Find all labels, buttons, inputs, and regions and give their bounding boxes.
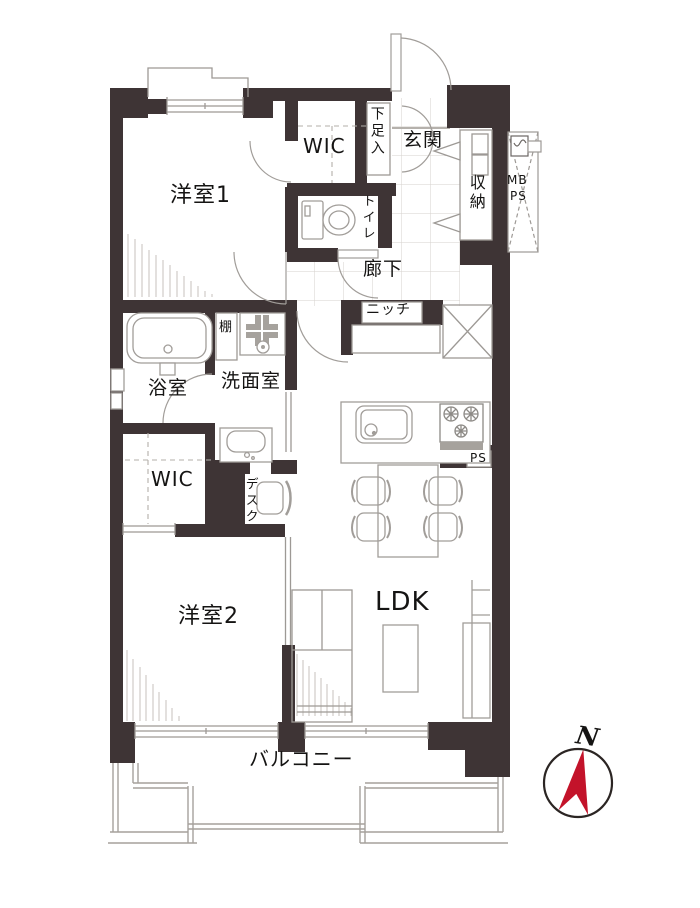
label-ps-duct: PS xyxy=(470,452,487,465)
compass xyxy=(544,747,612,817)
room-label-ldk: LDK xyxy=(375,589,430,616)
label-niche: ニッチ xyxy=(366,303,411,318)
room-label-washroom: 洗面室 xyxy=(221,372,281,392)
label-mb: MB xyxy=(507,174,528,187)
room-label-shoe-cabinet: 下足入 xyxy=(369,106,384,157)
floor-plan: 洋室1 WIC 下足入 玄関 収納 MB PS トイレ 廊下 ニッチ 棚 浴室 … xyxy=(0,0,700,908)
room-label-storage: 収納 xyxy=(467,174,484,212)
room-label-wic1: WIC xyxy=(303,136,346,157)
room-label-balcony: バルコニー xyxy=(249,749,354,770)
label-desk: デスク xyxy=(243,477,257,525)
label-ps-meter: PS xyxy=(510,190,527,203)
room-label-entrance: 玄関 xyxy=(403,131,443,151)
room-label-hallway: 廊下 xyxy=(363,260,403,280)
toilet-fixture xyxy=(302,201,355,239)
room-label-bathroom: 浴室 xyxy=(148,379,188,399)
compass-north-label: N xyxy=(574,722,602,752)
kitchen-counter xyxy=(341,402,490,463)
room-label-bedroom1: 洋室1 xyxy=(170,184,231,207)
balcony-railing xyxy=(108,763,508,843)
room-label-bedroom2: 洋室2 xyxy=(178,605,239,628)
dining-set xyxy=(352,465,462,557)
room-label-toilet: トイレ xyxy=(360,194,374,242)
room-label-wic2: WIC xyxy=(151,469,194,490)
label-shelf: 棚 xyxy=(219,321,233,335)
desk-chair xyxy=(257,481,291,515)
floor-plan-drawing xyxy=(0,0,700,908)
